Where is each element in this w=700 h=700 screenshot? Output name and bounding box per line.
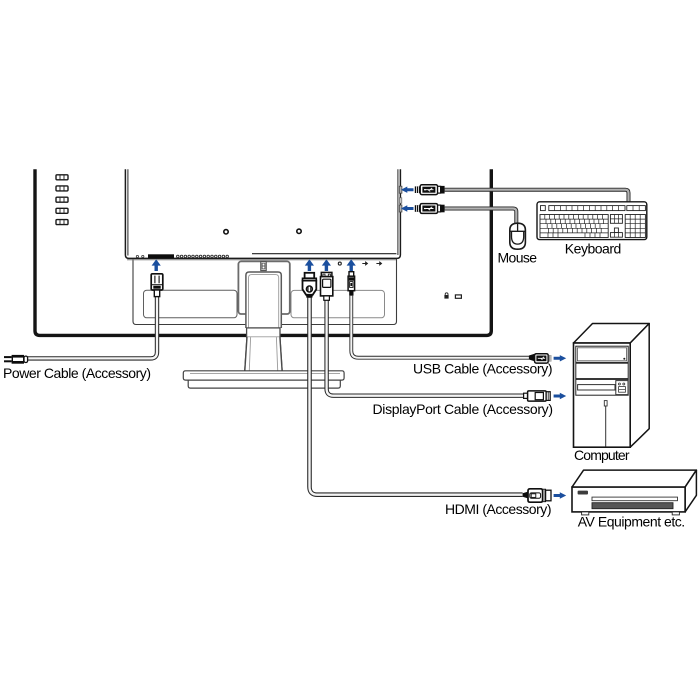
svg-text:Mouse: Mouse bbox=[498, 249, 538, 265]
svg-text:AV Equipment etc.: AV Equipment etc. bbox=[578, 513, 686, 529]
svg-text:DisplayPort Cable (Accessory): DisplayPort Cable (Accessory) bbox=[373, 401, 554, 417]
svg-text:HDMI (Accessory): HDMI (Accessory) bbox=[445, 501, 552, 517]
svg-text:Computer: Computer bbox=[574, 447, 630, 463]
svg-text:USB Cable (Accessory): USB Cable (Accessory) bbox=[413, 360, 553, 376]
svg-text:Keyboard: Keyboard bbox=[565, 240, 622, 256]
svg-text:Power Cable (Accessory): Power Cable (Accessory) bbox=[3, 365, 151, 381]
